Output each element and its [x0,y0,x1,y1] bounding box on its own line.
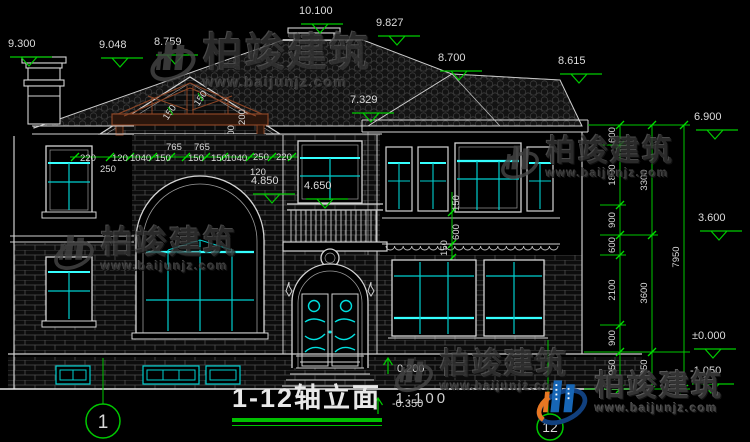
right-windows-upper [382,143,560,250]
elevation-label: 7.329 [350,94,378,106]
right-dim-columns: 600 1800 900 600 2100 900 1050 3300 3600… [584,121,690,393]
elevation-label: 9.300 [8,38,36,50]
dim-label: 900 [607,330,618,346]
dim-label: 600 [607,127,618,143]
elevation-label: 0.200 [397,363,425,375]
dim-label: 1050 [607,359,618,380]
elevation-label: 9.048 [99,39,127,51]
dim-label: 3600 [639,282,650,303]
elevation-label: 4.650 [304,180,332,192]
dim-label: 150 [155,153,171,164]
dim-label: 600 [451,224,462,240]
entry-door [292,264,368,368]
dim-label: 900 [607,212,618,228]
elevation-label: ±0.000 [692,330,726,342]
drawing-scale: 1:100 [396,390,449,407]
basement-window [56,366,90,384]
dim-label: 3300 [639,169,650,190]
dim-label: 1040 [226,153,247,164]
elevation-label: 10.100 [299,5,333,17]
title-underline-thick [232,418,382,422]
elevation-label: 3.600 [698,212,726,224]
window-arched [132,176,268,339]
chimney-left [22,57,66,124]
right-windows-ground [388,260,548,338]
dim-label: 1040 [130,153,151,164]
dim-label: 150 [439,240,450,256]
elevation-label: 6.900 [694,111,722,123]
dim-label: 150 [211,153,227,164]
dim-label: 150 [188,153,204,164]
chimney-top [288,28,340,40]
balcony-window [298,141,362,203]
dim-label: 120 [112,153,128,164]
dim-label: 1800 [607,164,618,185]
cad-canvas: 150 150 200 300 [0,0,750,442]
dim-label: 220 [80,153,96,164]
basement-window [143,366,199,384]
elevation-label: 4.850 [251,175,279,187]
dim-label: 150 [451,195,462,211]
dim-label: 250 [100,164,116,175]
dim-label: 250 [253,152,269,163]
drawing-title: 1-12轴立面 [232,376,381,415]
axis-12: 12 [537,340,563,440]
elevation-label: 9.827 [376,17,404,29]
elevation-label: 8.759 [154,36,182,48]
elevation-label: 8.615 [558,55,586,67]
dim-label: 765 [194,142,210,153]
dim-label: 1050 [639,359,650,380]
dim-label: 7950 [671,246,682,267]
dim-label: 220 [276,152,292,163]
dim-label: 200 [237,109,248,125]
dim-label: 600 [607,237,618,253]
window-left-lower [42,257,96,327]
drawing-title-block: 1-12轴立面 1:100 [232,376,472,426]
title-underline-thin [232,425,382,426]
elevation-label: -1.050 [690,365,721,377]
elevation-label: 8.700 [438,52,466,64]
axis-label: 12 [542,419,558,435]
axis-label: 1 [98,412,109,433]
dim-label: 765 [166,142,182,153]
dim-label: 2100 [607,279,618,300]
